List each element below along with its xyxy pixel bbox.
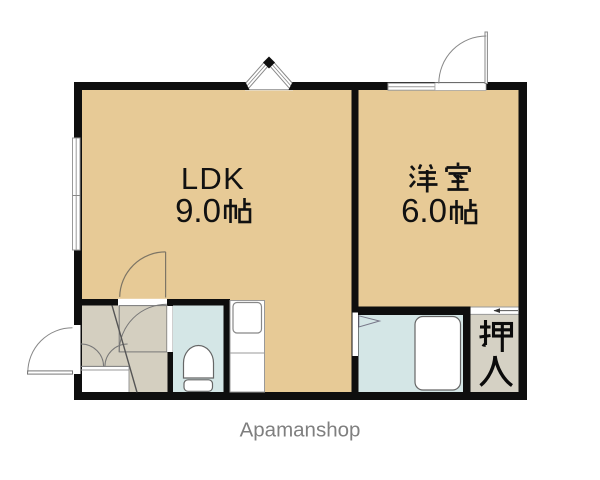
svg-text:9.0: 9.0 bbox=[175, 192, 221, 229]
svg-text:LDK: LDK bbox=[181, 161, 245, 196]
svg-text:Apamanshop: Apamanshop bbox=[240, 419, 361, 442]
svg-text:6.0: 6.0 bbox=[401, 192, 447, 229]
